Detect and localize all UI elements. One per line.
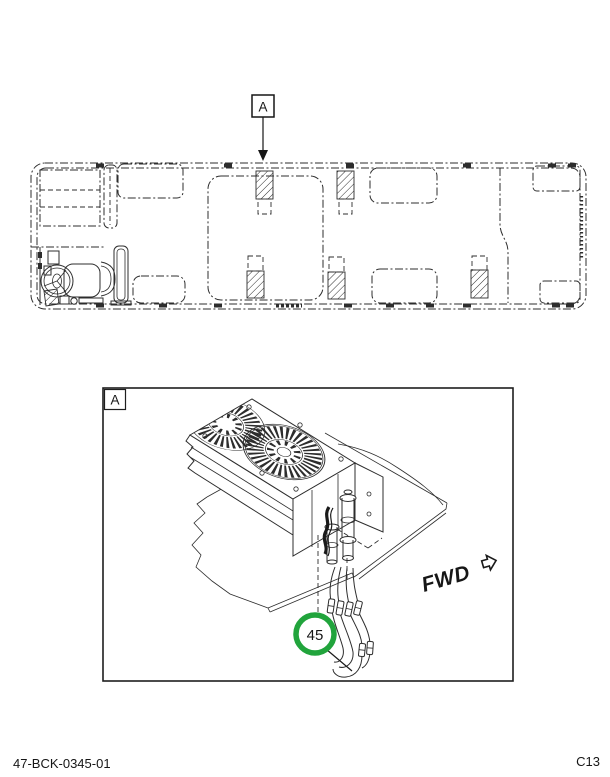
detail-view-a: A (103, 388, 513, 681)
roof-vent (471, 270, 488, 298)
roof-vent (256, 171, 273, 199)
bus-roof-plan (31, 163, 586, 309)
driver-seat (64, 262, 115, 297)
part-callout-number: 45 (307, 627, 324, 644)
bus-outline-inner (37, 168, 580, 304)
roof-vent (337, 171, 354, 199)
entry-door-panel (111, 246, 131, 305)
page-footer: 47-BCK-0345-01 C13 (13, 754, 600, 771)
doc-number: 47-BCK-0345-01 (13, 756, 111, 771)
detail-label: A (110, 393, 119, 408)
callout-a: A (252, 95, 274, 161)
page-code: C13 (576, 754, 600, 769)
driver-area (31, 246, 185, 306)
roof-vents (247, 171, 488, 299)
stepwell (44, 289, 59, 306)
callout-a-label: A (258, 100, 267, 115)
front-rack (40, 170, 100, 226)
roof-vent (328, 272, 345, 299)
callout-a-arrowhead (258, 150, 268, 161)
drawing-canvas: A (0, 0, 610, 777)
bench-seat (133, 276, 185, 303)
roof-vent (247, 271, 264, 298)
front-partition (104, 164, 183, 228)
